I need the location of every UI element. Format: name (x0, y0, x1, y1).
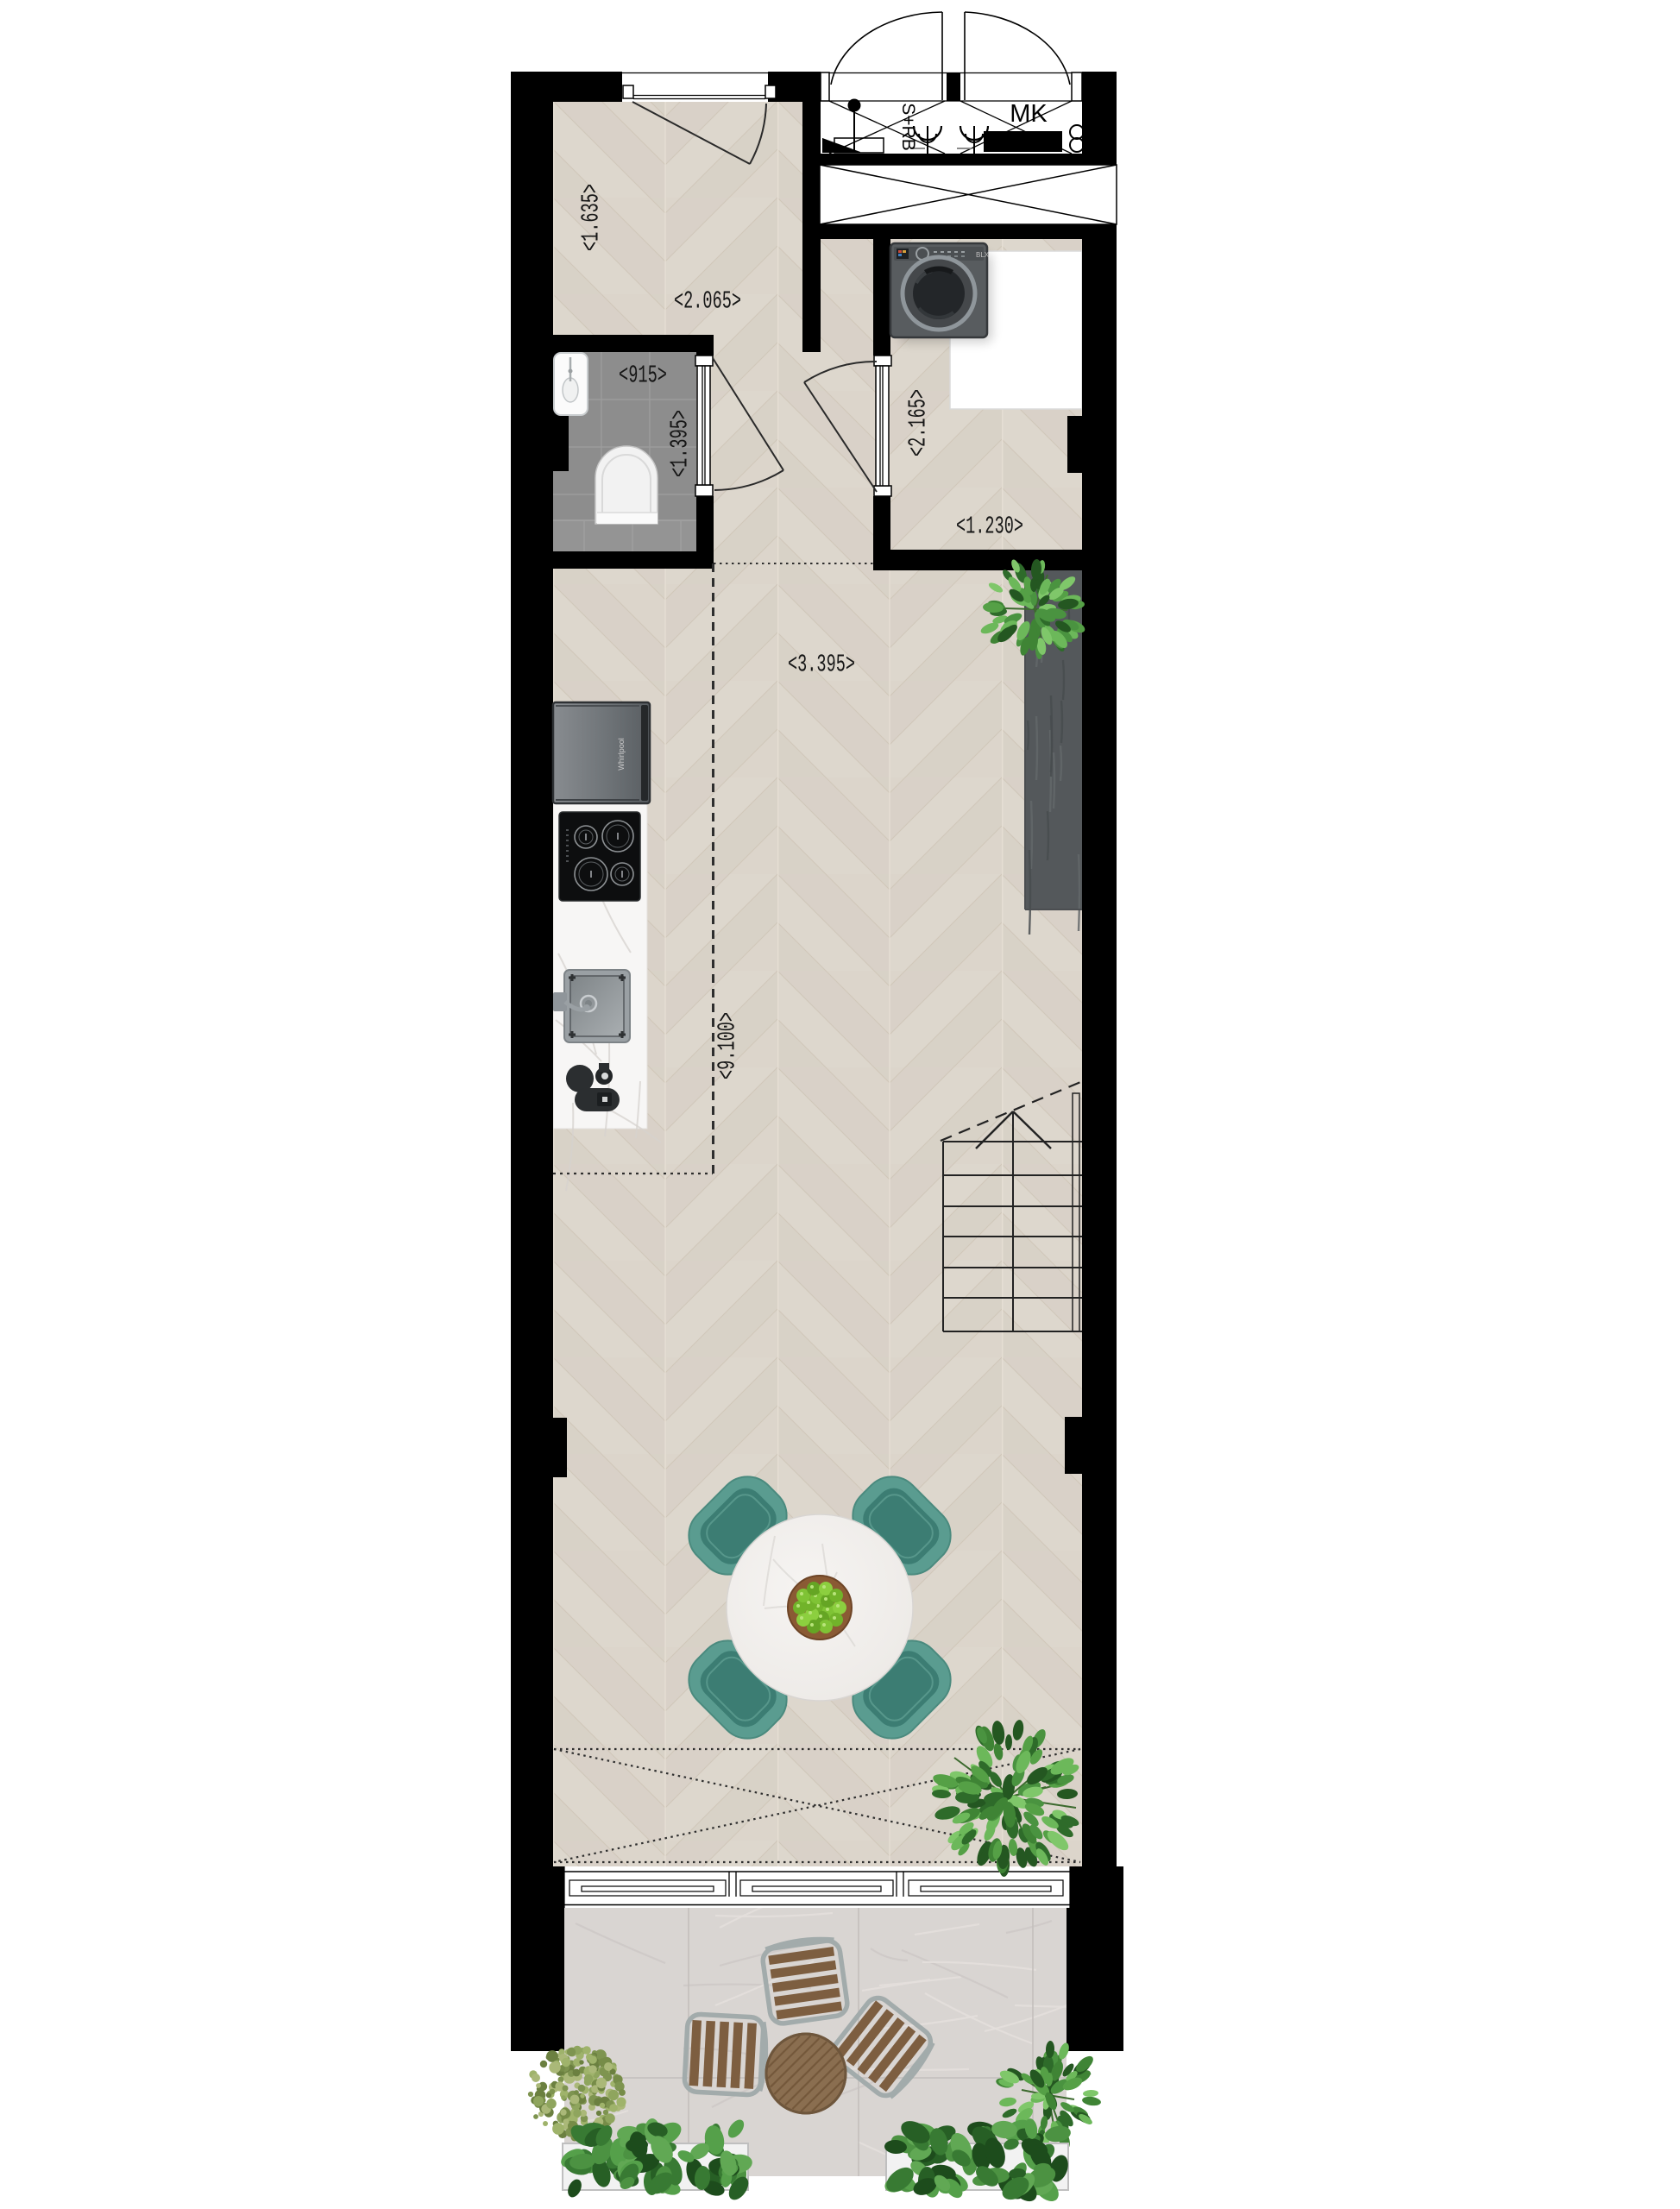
svg-text:Whirlpool: Whirlpool (617, 738, 626, 771)
svg-text:<1.395>: <1.395> (666, 410, 695, 477)
svg-text:<1.230>: <1.230> (956, 513, 1023, 541)
svg-text:<9.100>: <9.100> (714, 1012, 742, 1079)
svg-text:S+RB: S+RB (898, 103, 918, 150)
svg-text:MK: MK (1010, 100, 1048, 128)
svg-text:<2.165>: <2.165> (904, 389, 933, 456)
svg-text:BLX: BLX (976, 251, 990, 259)
svg-text:<915>: <915> (619, 362, 667, 390)
svg-text:<3.395>: <3.395> (788, 651, 855, 679)
svg-text:<1.635>: <1.635> (577, 184, 606, 251)
svg-text:<2.065>: <2.065> (674, 287, 741, 316)
